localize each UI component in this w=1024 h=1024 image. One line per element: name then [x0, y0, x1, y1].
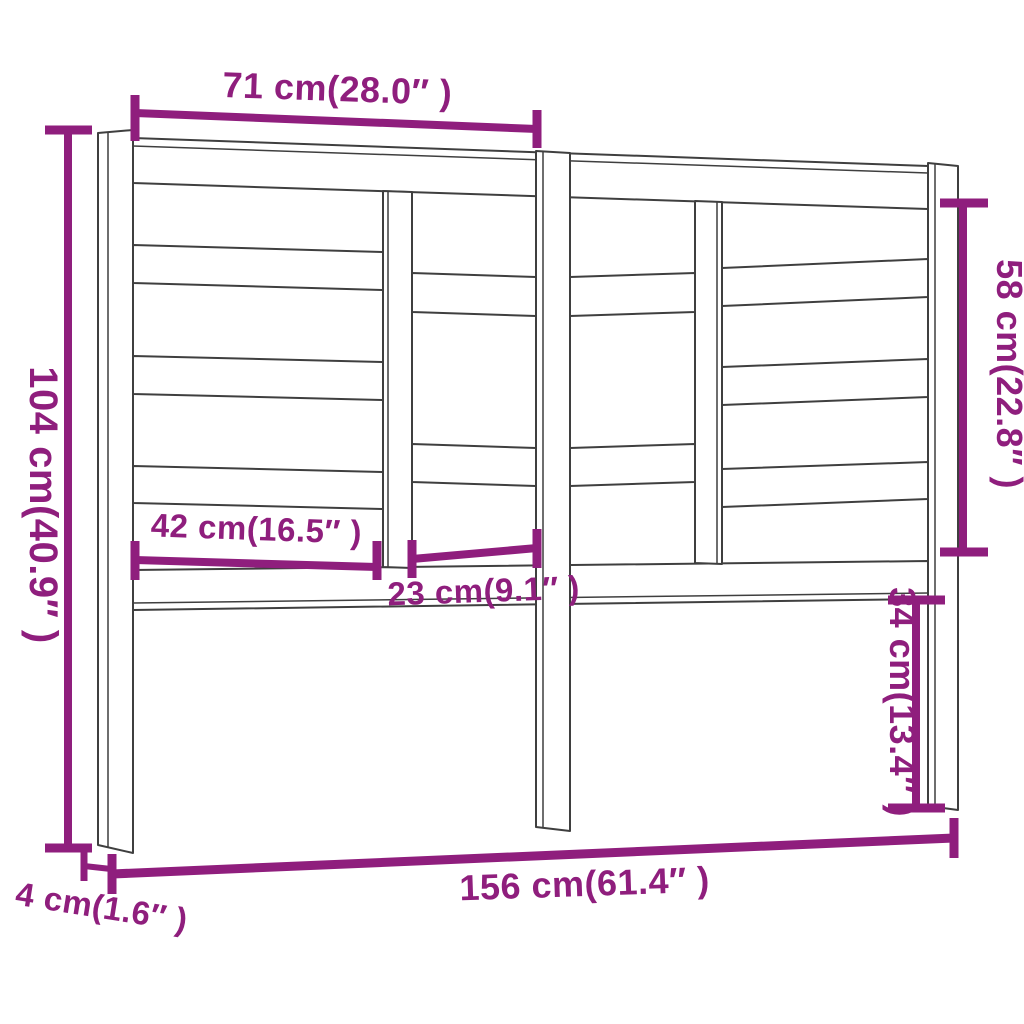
headboard-slat [570, 273, 695, 316]
headboard-slat [133, 245, 383, 290]
headboard-slat [722, 462, 928, 507]
dimension-line [84, 866, 111, 869]
dimension-overall-height: 104 cm(40.9″ ) [21, 130, 92, 848]
dimension-overall-width: 156 cm(61.4″ ) [112, 818, 954, 908]
headboard-slat [133, 466, 383, 509]
headboard-center-post [536, 151, 570, 831]
headboard-left-post [98, 130, 133, 853]
headboard-slat [570, 444, 695, 486]
headboard-slat [722, 259, 928, 306]
dimension-line [135, 560, 377, 567]
product-diagram-canvas: 71 cm(28.0″ ) 104 cm(40.9″ ) 58 cm(22.8″… [0, 0, 1024, 1024]
dimension-label-overall-height: 104 cm(40.9″ ) [21, 366, 65, 643]
dimension-top-section-width: 71 cm(28.0″ ) [135, 64, 537, 148]
dimension-line [412, 548, 537, 559]
headboard-slat [133, 356, 383, 400]
dimension-label-wide-opening: 42 cm(16.5″ ) [150, 506, 362, 550]
dimension-depth: 4 cm(1.6″ ) [13, 851, 190, 938]
headboard-vertical-slat-right [695, 201, 722, 564]
dimension-label-inner-opening: 23 cm(9.1″ ) [387, 569, 581, 613]
dimension-line [135, 113, 537, 129]
headboard-drawing [98, 130, 958, 853]
headboard-right-post [928, 163, 958, 810]
headboard-top-rail [133, 138, 928, 209]
headboard-slat [412, 273, 536, 316]
dimension-label-top-width: 71 cm(28.0″ ) [222, 64, 453, 113]
dimension-label-depth: 4 cm(1.6″ ) [13, 875, 190, 939]
dimension-label-panel-height: 58 cm(22.8″ ) [989, 259, 1024, 489]
headboard-dimension-diagram: 71 cm(28.0″ ) 104 cm(40.9″ ) 58 cm(22.8″… [0, 0, 1024, 1024]
dimension-label-leg-height: 34 cm(13.4″ ) [882, 587, 923, 817]
headboard-slat [412, 444, 536, 486]
headboard-slat [722, 359, 928, 405]
dimension-label-overall-width: 156 cm(61.4″ ) [459, 859, 711, 909]
